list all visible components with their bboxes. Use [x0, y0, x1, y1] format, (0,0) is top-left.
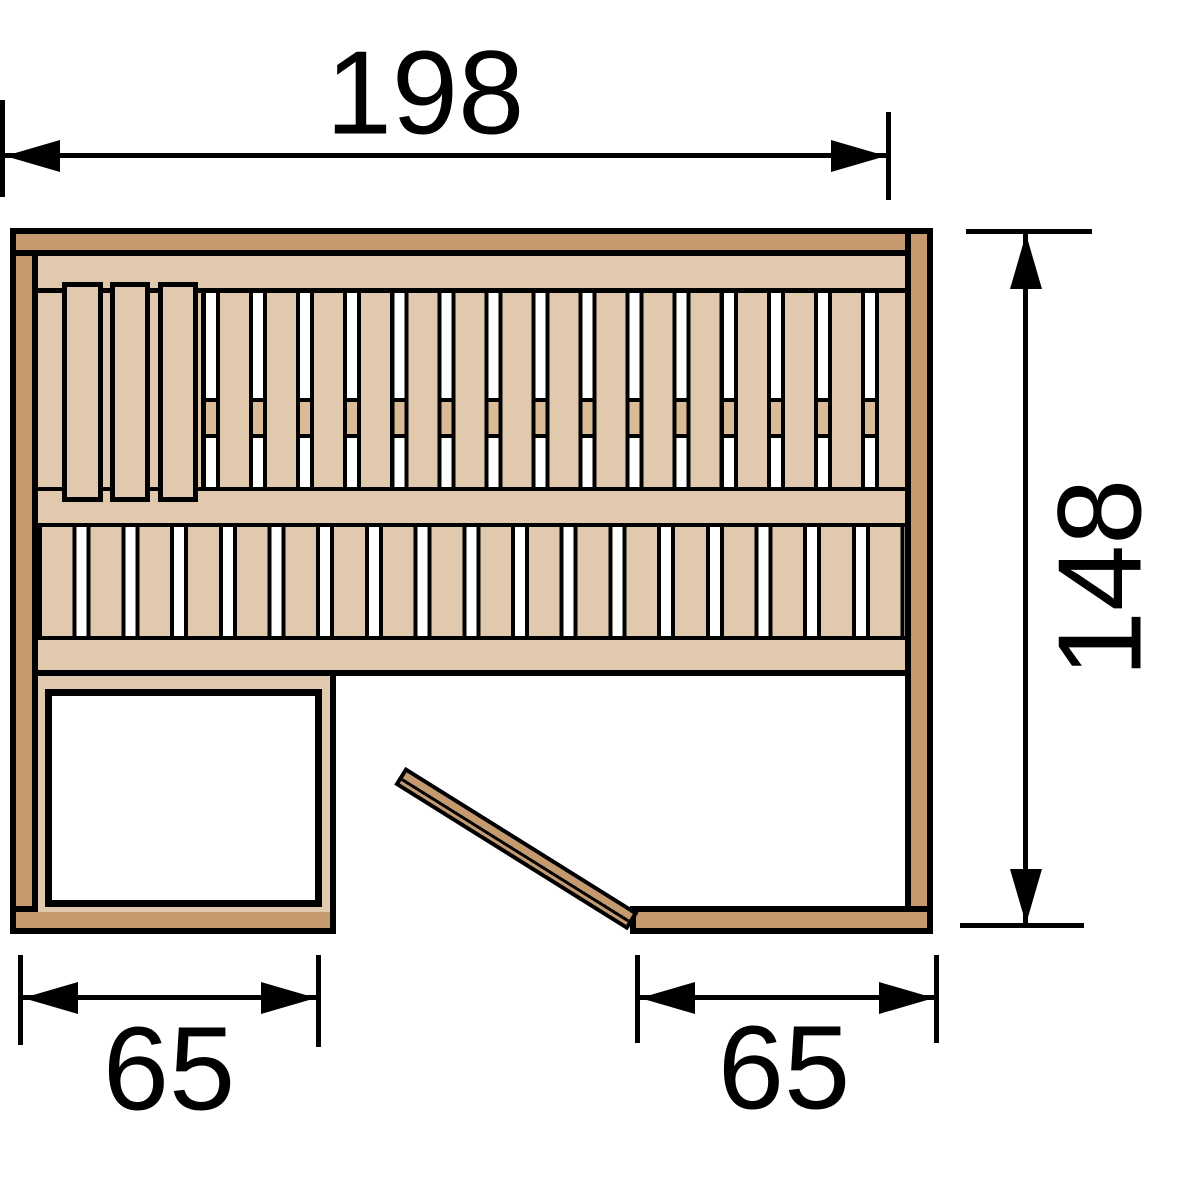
- dim-width-label: 198: [326, 34, 525, 153]
- dim-width-tick-right: [886, 112, 891, 200]
- dim-depth-arrow-up-icon: [1010, 234, 1042, 289]
- wall-bottom-right: [630, 906, 933, 934]
- dim-door-arrow-left-icon: [640, 982, 695, 1014]
- dim-depth-label: 148: [1041, 479, 1160, 678]
- left-platform-frame: [38, 676, 336, 912]
- dim-width-arrow-left-icon: [5, 140, 60, 172]
- dim-door-label: 65: [718, 1009, 850, 1128]
- upper-bench: [38, 293, 905, 487]
- lower-bench-slats: [38, 527, 905, 636]
- door-leaf: [394, 767, 638, 931]
- dim-door-tick-right: [934, 955, 939, 1043]
- wall-left: [10, 228, 38, 934]
- left-platform-opening: [45, 689, 322, 907]
- dim-depth-line: [1023, 234, 1028, 924]
- upper-bench-slats: [201, 293, 905, 487]
- dim-depth-arrow-down-icon: [1010, 869, 1042, 924]
- dim-bench-arrow-right-icon: [261, 982, 316, 1014]
- lower-bench-front-rail: [38, 636, 905, 676]
- headrest-slat-2: [110, 282, 150, 502]
- wall-right: [905, 228, 933, 934]
- dim-door-arrow-right-icon: [879, 982, 934, 1014]
- headrest-slat-1: [62, 282, 103, 502]
- dim-bench-label: 65: [103, 1010, 235, 1129]
- dim-bench-tick-right: [316, 955, 321, 1047]
- wall-top: [10, 228, 933, 256]
- headrest-slat-3: [158, 282, 198, 502]
- sauna-floor-plan: 198 148: [0, 0, 1200, 1200]
- dim-bench-arrow-left-icon: [23, 982, 78, 1014]
- dim-width-arrow-right-icon: [831, 140, 886, 172]
